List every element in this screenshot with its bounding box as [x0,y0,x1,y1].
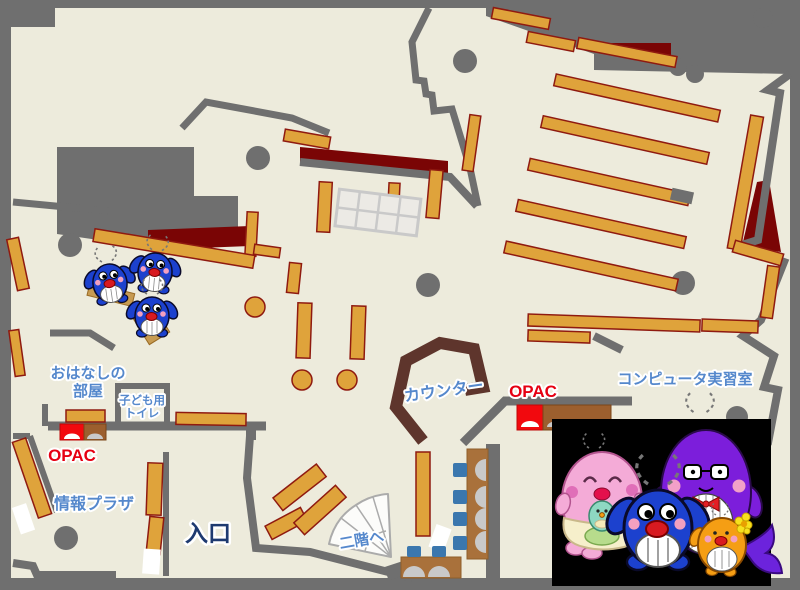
wall-mass-top-left [0,0,55,27]
map-canvas: おはなしの 部屋 子ども用 トイレ OPAC 情報プラザ 入口 カウンター OP… [0,0,800,590]
bookshelf [317,182,333,233]
column [416,273,440,297]
chair [407,546,421,557]
label-entrance: 入口 [185,520,231,546]
label-opac-right: OPAC [509,382,557,401]
column [753,8,773,28]
bookshelf [66,410,105,422]
label-kids-toilet-line1: 子ども用 [119,394,165,407]
door-gap [142,548,161,574]
bookshelf [350,306,366,359]
column [246,146,270,170]
round-table [292,370,312,390]
column [58,233,82,257]
column [54,526,78,550]
opac-terminal-left [60,424,106,440]
label-computer-room: コンピュータ実習室 [617,370,752,388]
grid-table [335,189,421,236]
mascot-family-panel [552,393,782,587]
bookshelf [528,330,590,343]
round-table [337,370,357,390]
label-opac-left: OPAC [48,446,96,465]
label-ohanashi-room-line2: 部屋 [73,382,103,400]
chair [432,546,446,557]
bookshelf [702,319,758,333]
chair [453,490,467,504]
chair [453,512,467,526]
round-table [245,297,265,317]
chair [453,536,467,550]
bookshelf [146,463,163,515]
column [453,49,477,73]
wall-stub [246,426,256,440]
bookshelf [176,412,246,425]
bookshelf [416,452,430,536]
column [686,65,704,83]
library-floor-map: おはなしの 部屋 子ども用 トイレ OPAC 情報プラザ 入口 カウンター OP… [0,0,800,590]
bookshelf [296,303,312,358]
chair [453,463,467,477]
label-ohanashi-room-line1: おはなしの [50,365,125,382]
label-joho-plaza: 情報プラザ [54,494,134,513]
bookshelf [286,262,301,293]
label-kids-toilet-line2: トイレ [125,407,160,420]
